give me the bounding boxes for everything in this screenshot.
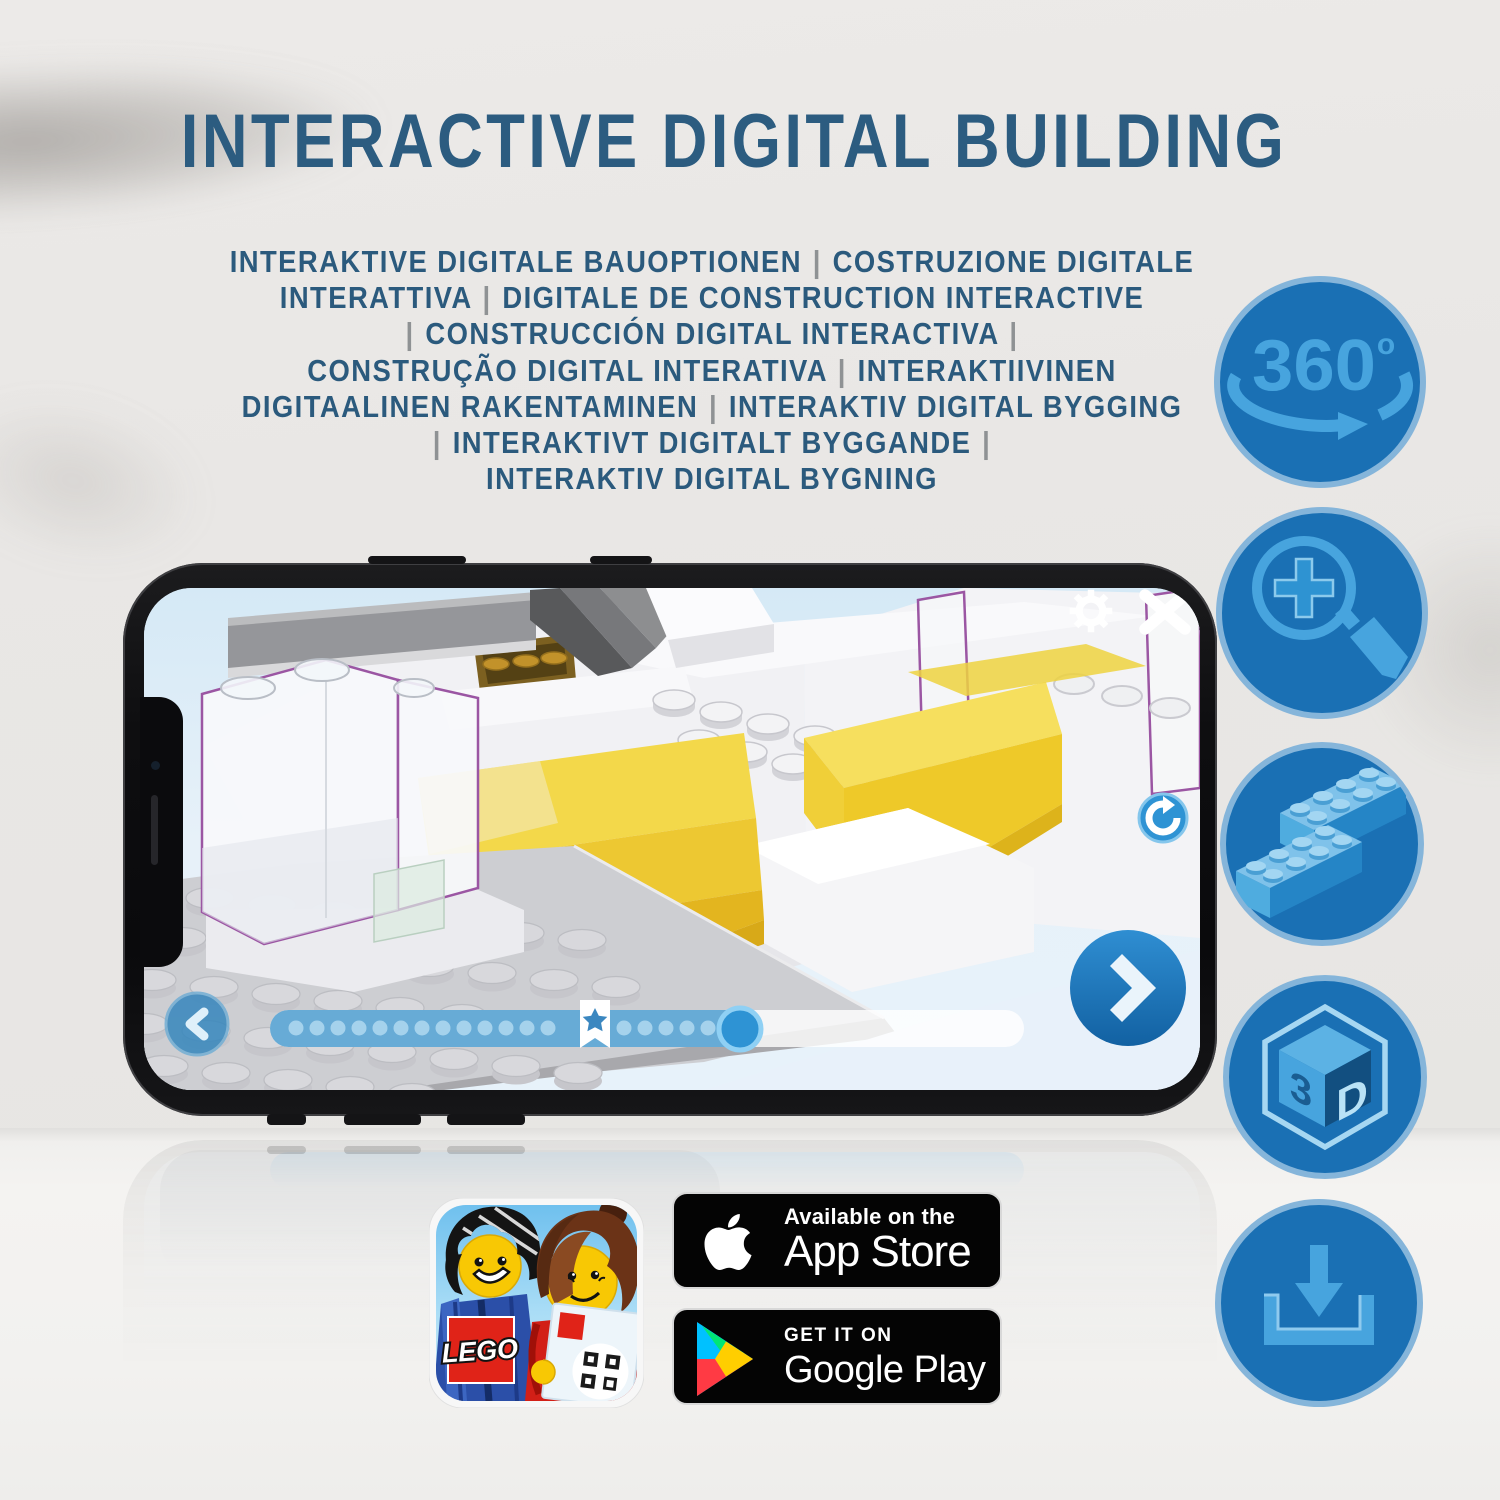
svg-text:LEGO: LEGO bbox=[441, 1333, 519, 1368]
svg-text:o: o bbox=[1377, 328, 1395, 361]
svg-text:360: 360 bbox=[1252, 326, 1376, 406]
